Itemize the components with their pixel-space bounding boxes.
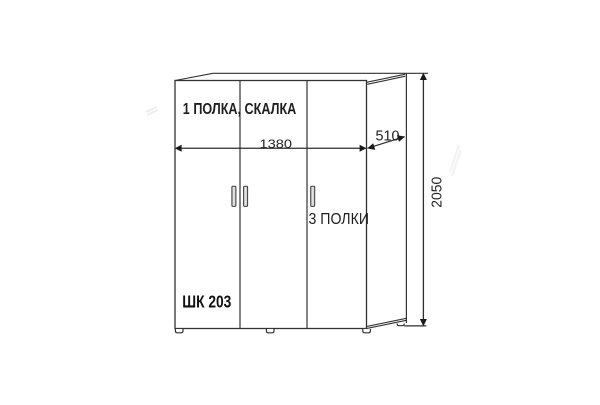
svg-text:1380: 1380 [260,137,293,151]
svg-text:2050: 2050 [429,177,446,208]
svg-text:1 ПОЛКА, СКАЛКА: 1 ПОЛКА, СКАЛКА [183,101,297,118]
svg-text:3 ПОЛКИ: 3 ПОЛКИ [309,211,370,228]
svg-text:ШК 203: ШК 203 [182,291,231,311]
svg-text:510: 510 [376,128,400,144]
